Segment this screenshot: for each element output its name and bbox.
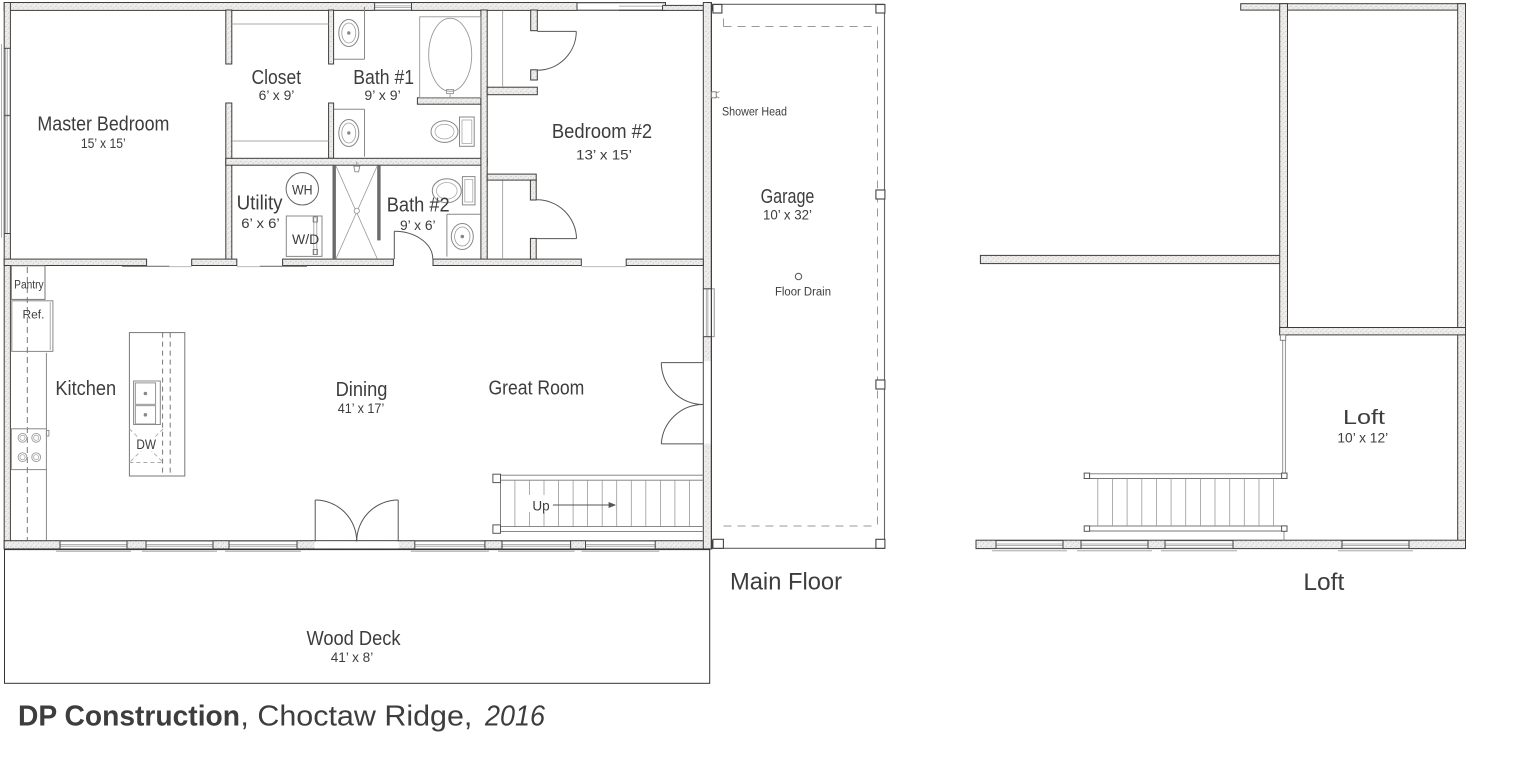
svg-text:Kitchen: Kitchen xyxy=(55,378,116,400)
svg-text:6’ x 6’: 6’ x 6’ xyxy=(241,215,280,231)
svg-text:6’ x 9’: 6’ x 9’ xyxy=(259,87,295,103)
svg-text:Garage: Garage xyxy=(761,186,815,208)
svg-text:Ref.: Ref. xyxy=(23,310,45,322)
svg-text:Loft: Loft xyxy=(1343,407,1386,429)
svg-text:10’ x 12’: 10’ x 12’ xyxy=(1337,430,1388,446)
svg-text:Bath #2: Bath #2 xyxy=(387,194,450,216)
svg-text:Bedroom #2: Bedroom #2 xyxy=(552,121,652,143)
svg-text:Main Floor: Main Floor xyxy=(730,569,842,596)
svg-text:DW: DW xyxy=(136,436,156,452)
svg-text:Utility: Utility xyxy=(237,192,283,214)
svg-text:Floor Drain: Floor Drain xyxy=(775,287,831,299)
svg-text:Dining: Dining xyxy=(336,379,388,401)
svg-text:Bath #1: Bath #1 xyxy=(353,67,414,89)
svg-text:Wood Deck: Wood Deck xyxy=(306,628,401,650)
svg-text:Pantry: Pantry xyxy=(14,280,44,292)
svg-text:Closet: Closet xyxy=(252,67,302,89)
svg-text:Great Room: Great Room xyxy=(488,377,584,399)
svg-text:9’ x 6’: 9’ x 6’ xyxy=(400,217,436,233)
svg-text:Shower Head: Shower Head xyxy=(722,107,787,119)
svg-text:41’ x 17’: 41’ x 17’ xyxy=(338,400,385,416)
svg-text:41’ x 8’: 41’ x 8’ xyxy=(331,649,374,665)
svg-text:DP Construction: DP Construction xyxy=(18,700,240,732)
svg-text:9’ x 9’: 9’ x 9’ xyxy=(364,87,400,103)
svg-text:W/D: W/D xyxy=(292,231,319,247)
svg-text:Loft: Loft xyxy=(1303,569,1344,596)
svg-text:2016: 2016 xyxy=(484,700,546,732)
svg-text:Master Bedroom: Master Bedroom xyxy=(37,113,169,135)
svg-text:, Choctaw Ridge,: , Choctaw Ridge, xyxy=(240,700,472,732)
svg-text:WH: WH xyxy=(292,181,313,197)
svg-text:13’ x 15’: 13’ x 15’ xyxy=(576,146,632,162)
svg-text:Up: Up xyxy=(532,498,549,514)
svg-text:10’ x 32’: 10’ x 32’ xyxy=(763,207,812,223)
svg-text:15’ x 15’: 15’ x 15’ xyxy=(81,135,126,151)
